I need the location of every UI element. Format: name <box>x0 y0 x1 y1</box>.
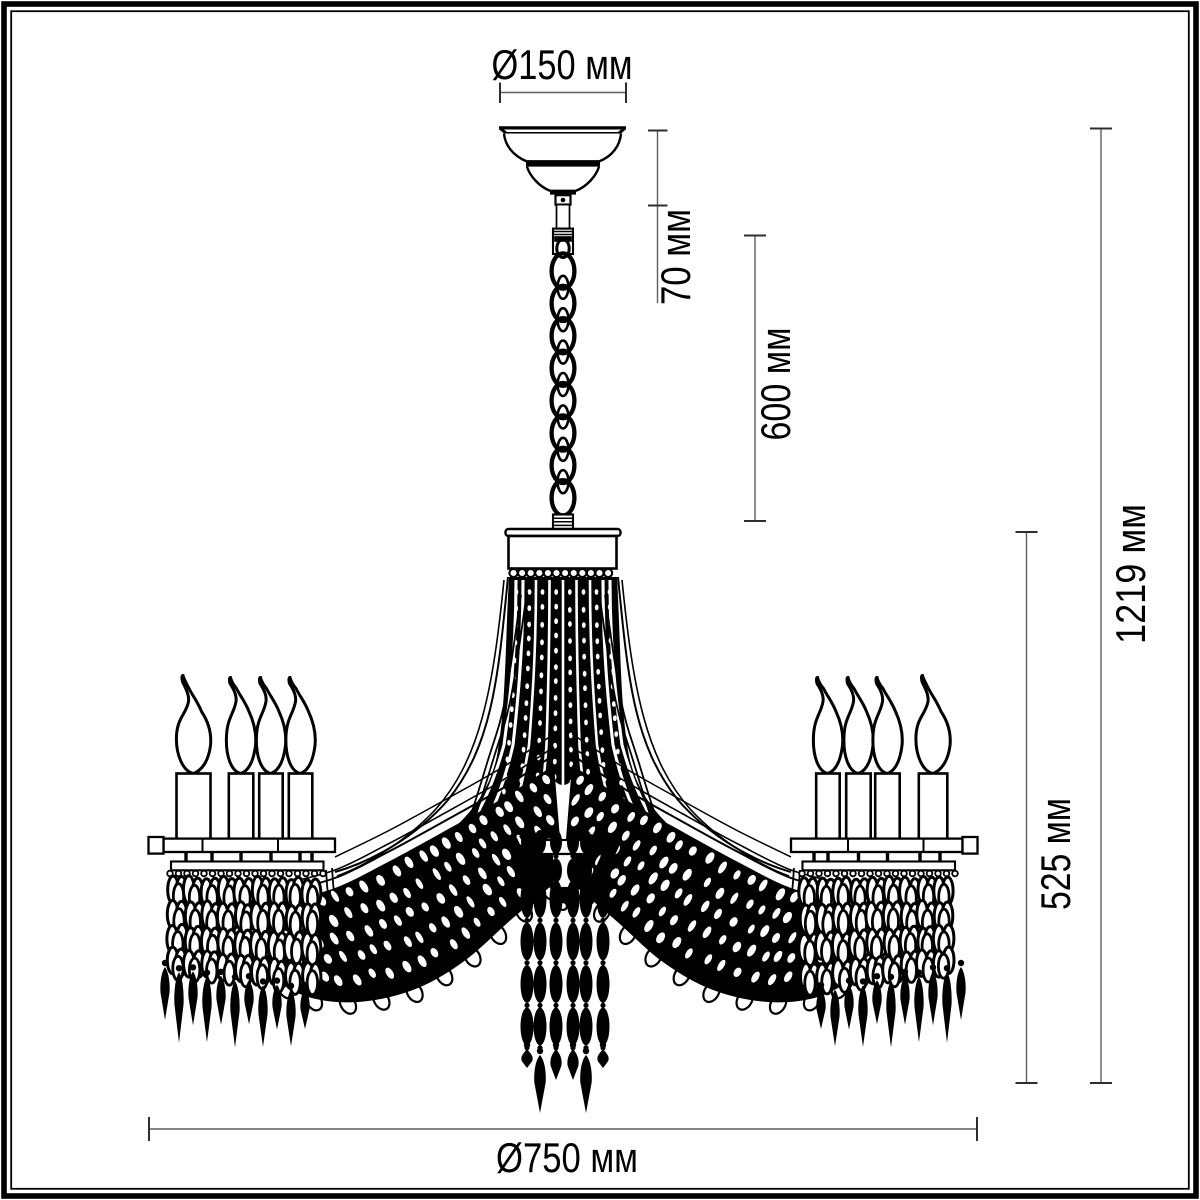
svg-text:600 мм: 600 мм <box>752 328 799 441</box>
svg-text:Ø150 мм: Ø150 мм <box>492 41 633 88</box>
svg-text:Ø750 мм: Ø750 мм <box>496 1134 638 1181</box>
svg-text:525 мм: 525 мм <box>1032 798 1079 910</box>
svg-text:1219 мм: 1219 мм <box>1107 504 1154 644</box>
svg-text:70 мм: 70 мм <box>652 209 699 305</box>
